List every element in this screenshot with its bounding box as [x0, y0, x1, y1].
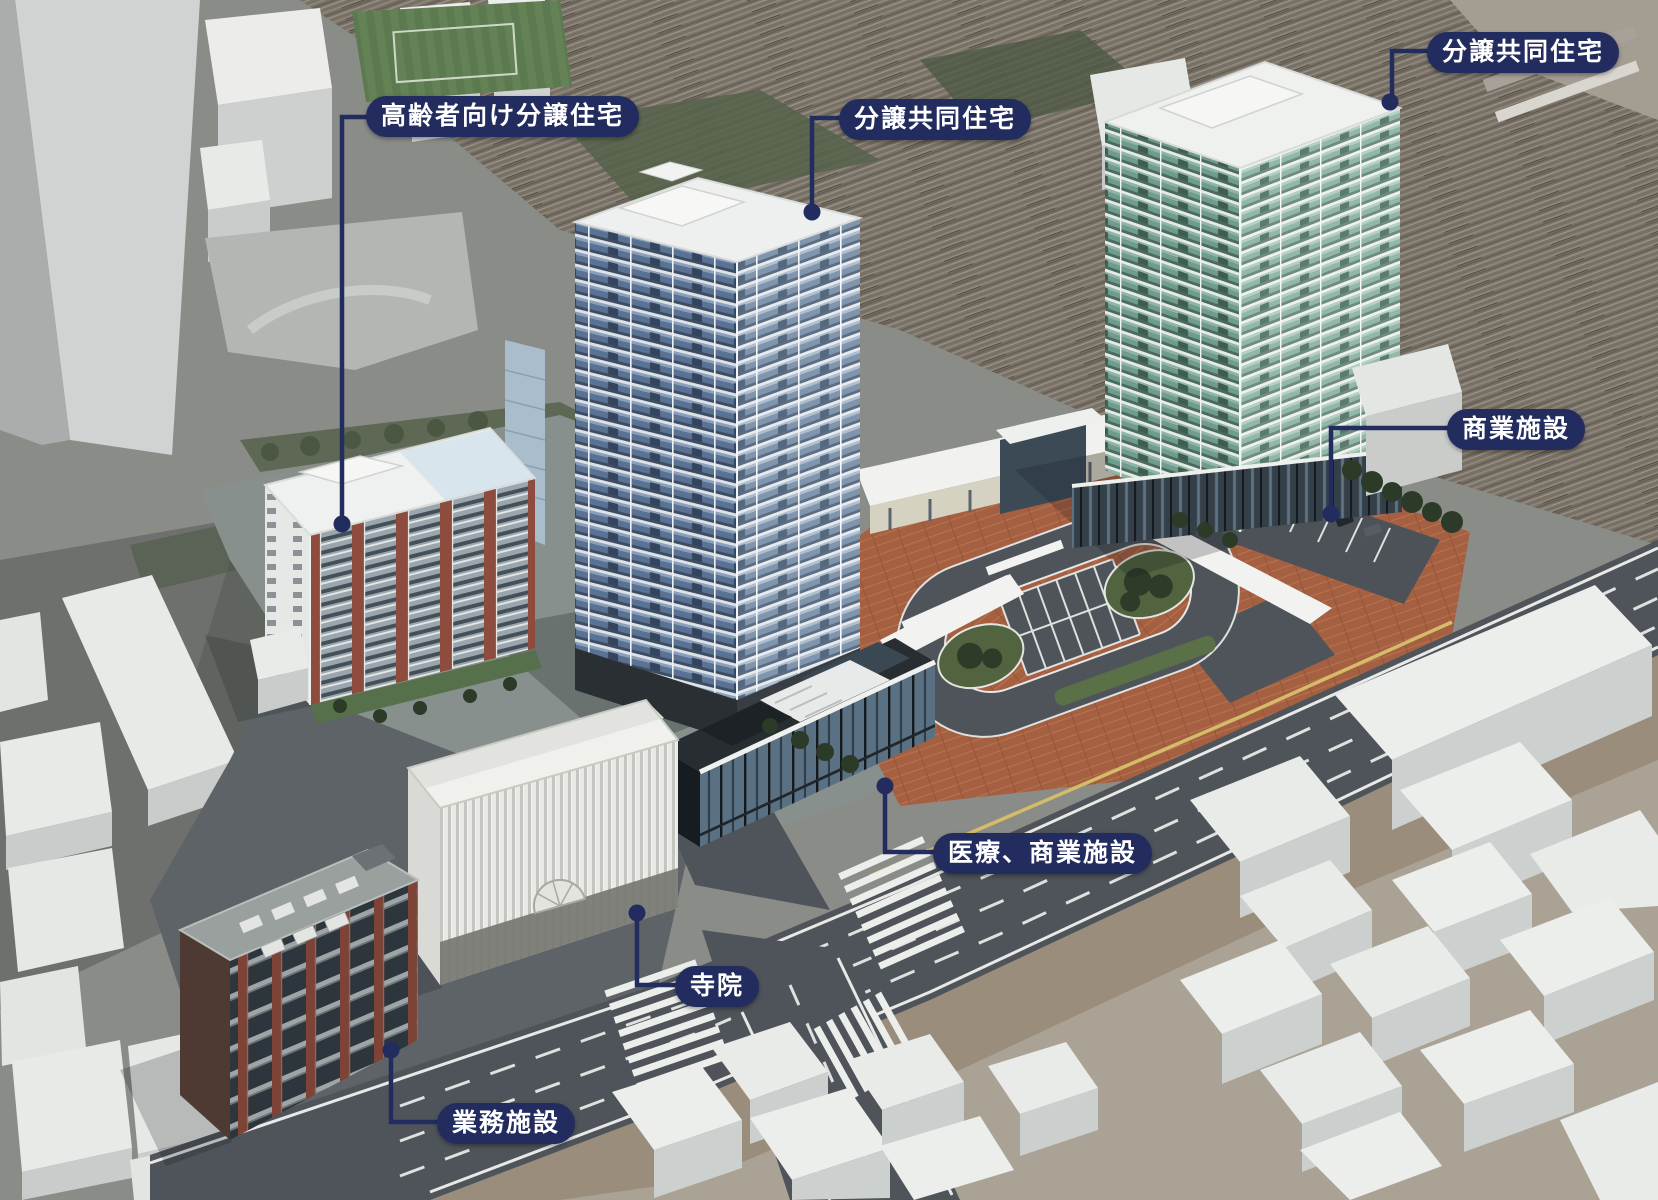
sports-field — [352, 0, 572, 102]
site-rendering — [0, 0, 1658, 1200]
label-temple: 寺院 — [675, 966, 759, 1007]
aerial-rendering-page: 高齢者向け分譲住宅 分譲共同住宅 分譲共同住宅 商業施設 医療、商業施設 寺院 … — [0, 0, 1658, 1200]
label-medical-commercial: 医療、商業施設 — [933, 833, 1152, 874]
label-office: 業務施設 — [437, 1103, 575, 1144]
label-condo-right: 分譲共同住宅 — [1427, 32, 1619, 73]
label-senior-housing: 高齢者向け分譲住宅 — [366, 96, 639, 137]
label-commercial: 商業施設 — [1447, 409, 1585, 450]
label-condo-center: 分譲共同住宅 — [839, 99, 1031, 140]
